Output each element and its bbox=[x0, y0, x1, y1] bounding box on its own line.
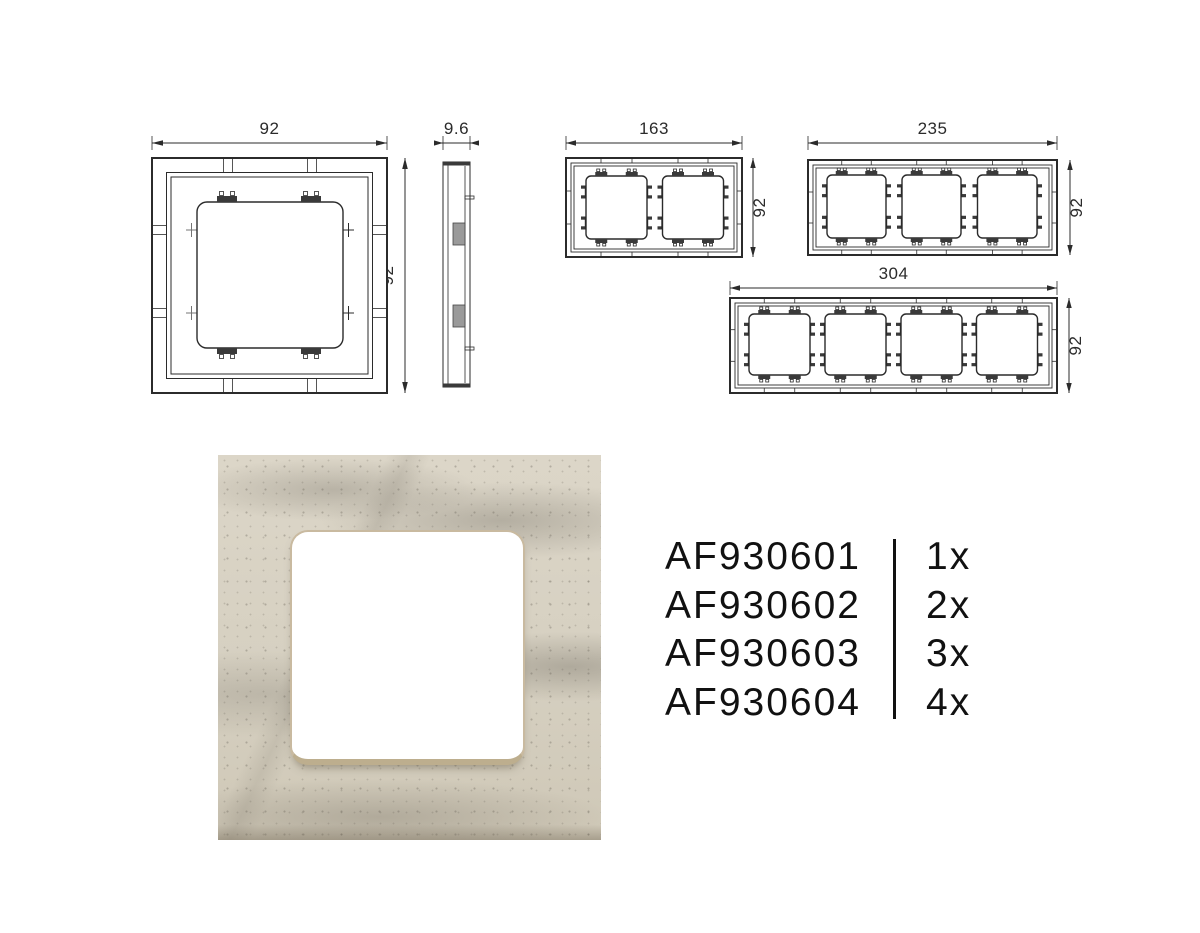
article-codes-column: AF930601 AF930602 AF930603 AF930604 bbox=[665, 533, 893, 727]
dim-width-label: 163 bbox=[639, 119, 669, 138]
article-qty-column: 1x 2x 3x 4x bbox=[896, 533, 971, 727]
module-opening bbox=[897, 168, 966, 245]
article-qty: 3x bbox=[926, 630, 971, 679]
module-opening bbox=[186, 192, 354, 359]
drawing-2gang-front-view: 163 92 bbox=[555, 110, 790, 275]
article-code: AF930602 bbox=[665, 582, 893, 631]
article-qty: 4x bbox=[926, 679, 971, 728]
drawing-1gang-front-view: 92 92 bbox=[140, 110, 430, 410]
article-code: AF930601 bbox=[665, 533, 893, 582]
dimension-height: 92 bbox=[1066, 298, 1085, 393]
article-code: AF930603 bbox=[665, 630, 893, 679]
module-opening bbox=[744, 307, 815, 382]
drawing-side-profile-view: 9.6 bbox=[425, 110, 495, 410]
drawing-3gang-front-view: 235 92 bbox=[795, 110, 1100, 270]
dim-width-label: 92 bbox=[260, 119, 280, 138]
dim-width-label: 304 bbox=[879, 264, 909, 283]
article-qty: 2x bbox=[926, 582, 971, 631]
dim-height-label: 92 bbox=[1067, 198, 1086, 218]
module-opening bbox=[972, 307, 1043, 382]
photo-frame-opening bbox=[290, 530, 525, 765]
profile-outline bbox=[443, 162, 474, 387]
module-opening bbox=[820, 307, 891, 382]
drawing-4gang-front-view: 304 92 bbox=[715, 258, 1100, 418]
dimension-width: 163 bbox=[566, 119, 742, 150]
dimension-width: 235 bbox=[808, 119, 1057, 150]
dim-height-label: 92 bbox=[1066, 336, 1085, 356]
product-photo-marble-frame bbox=[218, 455, 601, 840]
article-qty: 1x bbox=[926, 533, 971, 582]
dimension-height: 92 bbox=[750, 158, 769, 257]
dimension-depth: 9.6 bbox=[434, 119, 479, 150]
dimension-height: 92 bbox=[1067, 160, 1086, 255]
module-opening bbox=[822, 168, 891, 245]
module-opening bbox=[581, 169, 652, 246]
article-list: AF930601 AF930602 AF930603 AF930604 1x 2… bbox=[665, 533, 971, 727]
dim-height-label: 92 bbox=[750, 198, 769, 218]
article-code: AF930604 bbox=[665, 679, 893, 728]
dimension-width: 304 bbox=[730, 264, 1057, 295]
module-opening bbox=[658, 169, 729, 246]
module-opening bbox=[973, 168, 1043, 245]
module-opening bbox=[896, 307, 967, 382]
dim-width-label: 235 bbox=[918, 119, 948, 138]
dim-depth-label: 9.6 bbox=[444, 119, 469, 138]
dimension-width: 92 bbox=[152, 119, 387, 150]
